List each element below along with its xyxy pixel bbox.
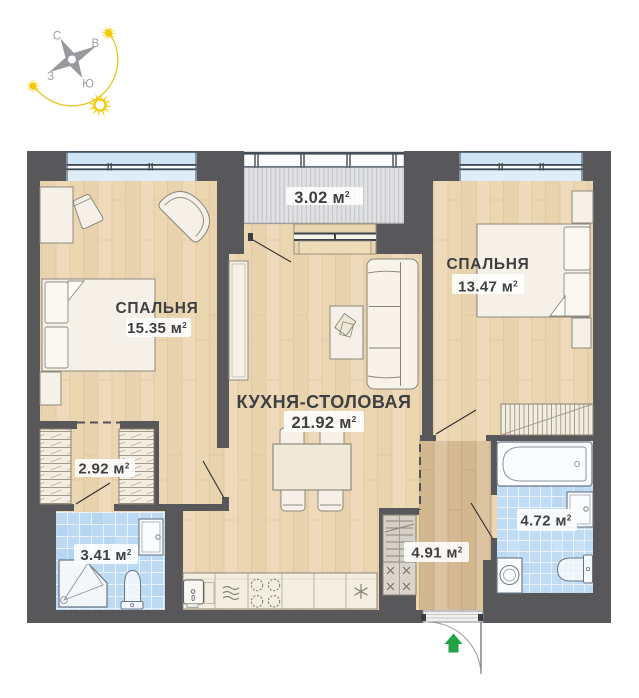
svg-text:КУХНЯ-СТОЛОВАЯ: КУХНЯ-СТОЛОВАЯ: [237, 392, 412, 412]
svg-text:4.91 м2: 4.91 м2: [411, 545, 463, 562]
svg-text:СПАЛЬНЯ: СПАЛЬНЯ: [447, 256, 530, 273]
svg-text:Ю: Ю: [82, 79, 94, 91]
svg-text:С: С: [53, 31, 61, 43]
svg-text:21.92 м2: 21.92 м2: [292, 414, 357, 432]
svg-text:З: З: [47, 71, 54, 83]
svg-text:СПАЛЬНЯ: СПАЛЬНЯ: [116, 300, 199, 317]
svg-text:В: В: [91, 38, 99, 50]
svg-text:4.72 м2: 4.72 м2: [520, 513, 572, 530]
svg-text:13.47 м2: 13.47 м2: [458, 279, 518, 296]
svg-text:3.02 м2: 3.02 м2: [294, 189, 350, 207]
svg-text:15.35 м2: 15.35 м2: [127, 320, 187, 337]
svg-text:2.92 м2: 2.92 м2: [78, 461, 130, 478]
svg-text:3.41 м2: 3.41 м2: [80, 547, 132, 564]
